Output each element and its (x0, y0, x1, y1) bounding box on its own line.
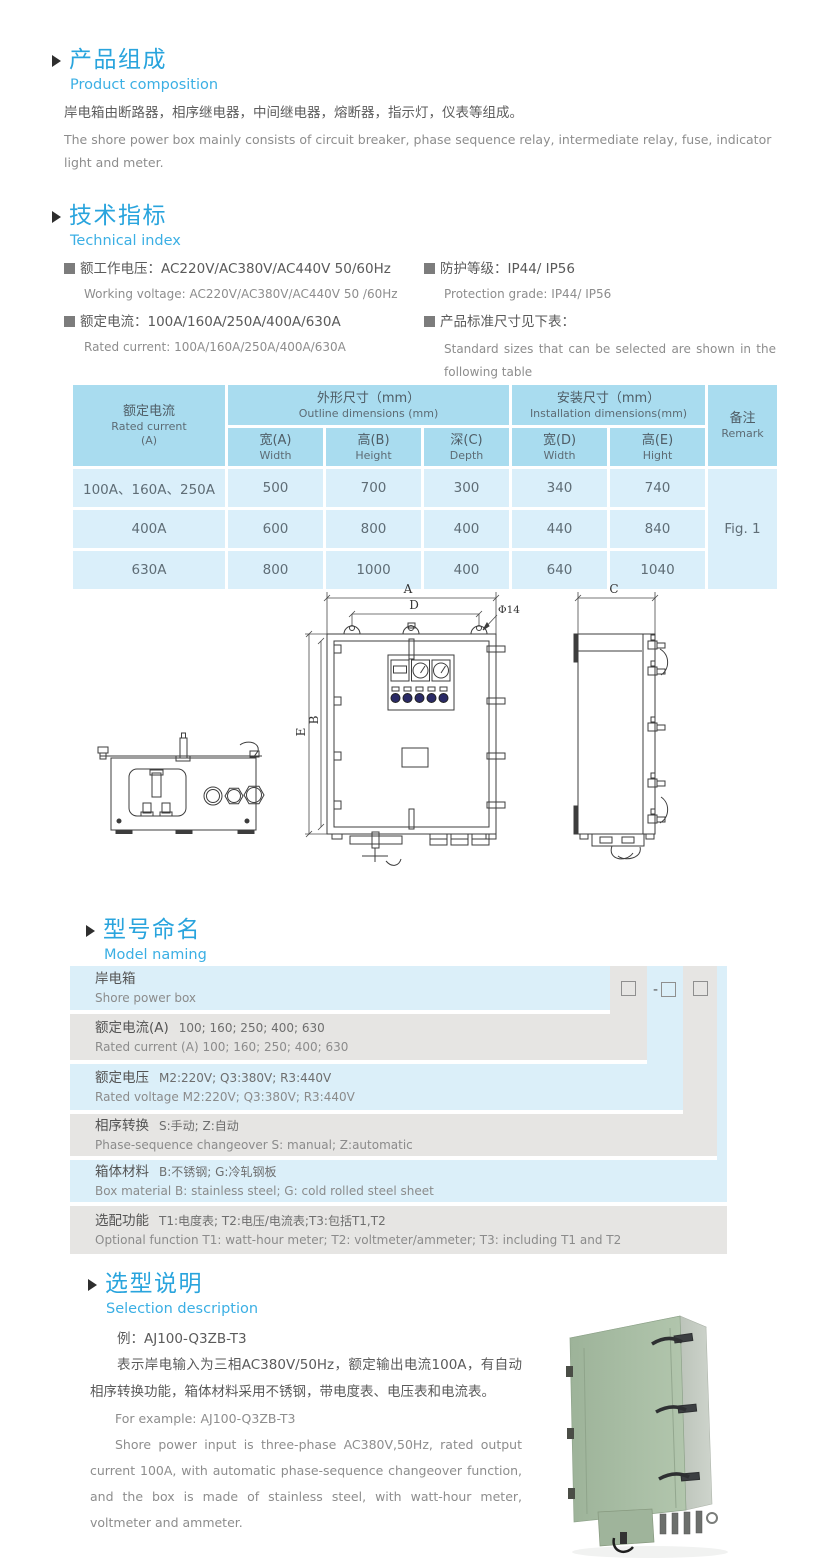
section-title-en: Model naming (104, 944, 207, 966)
spec-rated-current-cn: 额定电流：100A/160A/250A/400A/630A (64, 312, 341, 332)
selection-body-en: Shore power input is three-phase AC380V,… (90, 1432, 522, 1536)
front-view: A D Φ14 E B (294, 582, 520, 865)
col-header-remark: 备注 Remark (708, 385, 777, 466)
cell-width-a: 500 (228, 469, 323, 507)
section-title-cn: 技术指标 (69, 202, 181, 230)
model-code-box-2: - (653, 979, 676, 998)
col-header-height-b: 高(B)Height (326, 428, 421, 466)
row-label-cn: 相序转换 (95, 1118, 149, 1134)
model-row-rated-voltage: 额定电压M2:220V; Q3:380V; R3:440V Rated volt… (70, 1064, 683, 1110)
model-code-box-1 (621, 981, 636, 996)
col-header-installation-dimensions: 安装尺寸（mm） Installation dimensions(mm) (512, 385, 705, 425)
col-header-rated-current: 额定电流 Rated current (A) (73, 385, 225, 466)
col-header-depth-c: 深(C)Depth (424, 428, 509, 466)
catalog-page: 产品组成 Product composition 岸电箱由断路器，相序继电器，中… (0, 0, 830, 1568)
dim-label-dia14: Φ14 (498, 604, 520, 616)
square-bullet-icon (64, 316, 75, 327)
dimensions-table: 额定电流 Rated current (A) 外形尺寸（mm） Outline … (70, 382, 780, 592)
spec-standard-sizes-en: Standard sizes that can be selected are … (444, 338, 776, 384)
side-view: C (574, 582, 668, 859)
section-model-naming-heading: 型号命名 Model naming (86, 916, 207, 966)
code-box-icon (661, 982, 676, 997)
model-row-box-material: 箱体材料B:不锈钢; G:冷轧钢板 Box material B: stainl… (70, 1160, 727, 1202)
row-detail-cn: B:不锈钢; G:冷轧钢板 (159, 1165, 276, 1179)
spec-rated-current-en: Rated current: 100A/160A/250A/400A/630A (84, 338, 346, 357)
table-row: 400A 600 800 400 440 840 (73, 510, 777, 548)
model-example-cn: 例：AJ100-Q3ZB-T3 (90, 1326, 522, 1352)
model-row-shore-power-box: 岸电箱 Shore power box (70, 966, 610, 1010)
row-detail-cn: 100; 160; 250; 400; 630 (179, 1021, 325, 1035)
section-title-en: Product composition (70, 74, 218, 96)
door-bolts (334, 645, 505, 809)
section-technical-index-heading: 技术指标 Technical index (52, 202, 181, 252)
spec-protection-grade-en: Protection grade: IP44/ IP56 (444, 285, 611, 304)
cell-remark-fig: Fig. 1 (708, 469, 777, 589)
product-composition-text-en: The shore power box mainly consists of c… (64, 128, 784, 174)
latches (648, 635, 668, 823)
cell-hight-e: 840 (610, 510, 705, 548)
cell-depth-c: 400 (424, 510, 509, 548)
row-label-en: Box material B: stainless steel; G: cold… (95, 1182, 727, 1200)
gland-holes (204, 786, 264, 805)
col-header-hight-e: 高(E)Hight (610, 428, 705, 466)
section-arrow-icon (52, 211, 61, 223)
row-label-cn: 额定电流(A) (95, 1020, 169, 1036)
cell-height-b: 700 (326, 469, 421, 507)
section-arrow-icon (86, 925, 95, 937)
cell-hight-e: 740 (610, 469, 705, 507)
dim-label-A: A (403, 582, 413, 596)
col-header-outline-dimensions: 外形尺寸（mm） Outline dimensions (mm) (228, 385, 509, 425)
row-label-cn: 选配功能 (95, 1213, 149, 1229)
spec-protection-grade-cn: 防护等级：IP44/ IP56 (424, 259, 575, 279)
row-label-cn: 岸电箱 (95, 971, 136, 987)
square-bullet-icon (64, 263, 75, 274)
row-label-en: Rated current (A) 100; 160; 250; 400; 63… (95, 1038, 647, 1056)
model-naming-diagram: AJ - 岸电箱 Shore power box 额定电流(A)100; 160… (70, 966, 730, 1256)
dim-label-C: C (609, 582, 618, 596)
cell-height-b: 800 (326, 510, 421, 548)
dim-label-D: D (409, 598, 419, 612)
model-row-optional-function: 选配功能T1:电度表; T2:电压/电流表;T3:包括T1,T2 Optiona… (70, 1206, 727, 1254)
product-composition-text-cn: 岸电箱由断路器，相序继电器，中间继电器，熔断器，指示灯，仪表等组成。 (64, 101, 774, 125)
row-label-en: Phase-sequence changeover S: manual; Z:a… (95, 1136, 717, 1154)
model-example-en: For example: AJ100-Q3ZB-T3 (90, 1406, 522, 1432)
section-arrow-icon (52, 55, 61, 67)
row-label-en: Rated voltage M2:220V; Q3:380V; R3:440V (95, 1088, 683, 1106)
dim-label-B: B (307, 715, 321, 724)
spec-working-voltage-en: Working voltage: AC220V/AC380V/AC440V 50… (84, 285, 398, 304)
spec-working-voltage-cn: 额工作电压：AC220V/AC380V/AC440V 50/60Hz (64, 259, 391, 279)
code-dash: - (653, 982, 658, 998)
section-title-cn: 选型说明 (105, 1270, 258, 1298)
cell-width-d: 340 (512, 469, 607, 507)
section-title-cn: 产品组成 (69, 46, 218, 74)
table-row: 100A、160A、250A 500 700 300 340 740 Fig. … (73, 469, 777, 507)
cell-width-a: 600 (228, 510, 323, 548)
model-code-box-3 (693, 981, 708, 996)
cell-depth-c: 300 (424, 469, 509, 507)
section-product-composition-heading: 产品组成 Product composition (52, 46, 218, 96)
cell-width-d: 440 (512, 510, 607, 548)
model-row-rated-current: 额定电流(A)100; 160; 250; 400; 630 Rated cur… (70, 1014, 647, 1060)
section-selection-description-heading: 选型说明 Selection description (88, 1270, 258, 1320)
cell-current: 100A、160A、250A (73, 469, 225, 507)
dim-label-E: E (294, 728, 308, 737)
row-label-en: Optional function T1: watt-hour meter; T… (95, 1231, 727, 1249)
col-header-width-a: 宽(A)Width (228, 428, 323, 466)
selection-body-cn: 表示岸电输入为三相AC380V/50Hz，额定输出电流100A，有自动相序转换功… (90, 1352, 522, 1406)
code-column-4 (717, 966, 727, 1160)
square-bullet-icon (424, 263, 435, 274)
section-title-en: Technical index (70, 230, 181, 252)
meter-panel (388, 655, 454, 710)
row-label-cn: 额定电压 (95, 1070, 149, 1086)
spec-standard-sizes-cn: 产品标准尺寸见下表： (424, 312, 575, 332)
section-title-cn: 型号命名 (103, 916, 207, 944)
bottom-view (98, 733, 264, 834)
row-detail-cn: M2:220V; Q3:380V; R3:440V (159, 1071, 331, 1085)
row-detail-cn: T1:电度表; T2:电压/电流表;T3:包括T1,T2 (159, 1214, 386, 1228)
col-header-width-d: 宽(D)Width (512, 428, 607, 466)
technical-drawing: A D Φ14 E B (0, 575, 830, 897)
row-label-en: Shore power box (95, 989, 610, 1007)
row-detail-cn: S:手动; Z:自动 (159, 1119, 239, 1133)
section-arrow-icon (88, 1279, 97, 1291)
selection-text: 例：AJ100-Q3ZB-T3 表示岸电输入为三相AC380V/50Hz，额定输… (90, 1326, 522, 1536)
cable-glands (660, 1511, 717, 1534)
square-bullet-icon (424, 316, 435, 327)
row-label-cn: 箱体材料 (95, 1164, 149, 1180)
indicator-lamps (391, 687, 448, 703)
section-title-en: Selection description (106, 1298, 258, 1320)
cabinet-door (570, 1316, 686, 1522)
model-row-phase-sequence: 相序转换S:手动; Z:自动 Phase-sequence changeover… (70, 1114, 717, 1156)
cable-glands (430, 834, 489, 845)
cell-current: 400A (73, 510, 225, 548)
product-photo-shore-power-box (540, 1298, 830, 1568)
